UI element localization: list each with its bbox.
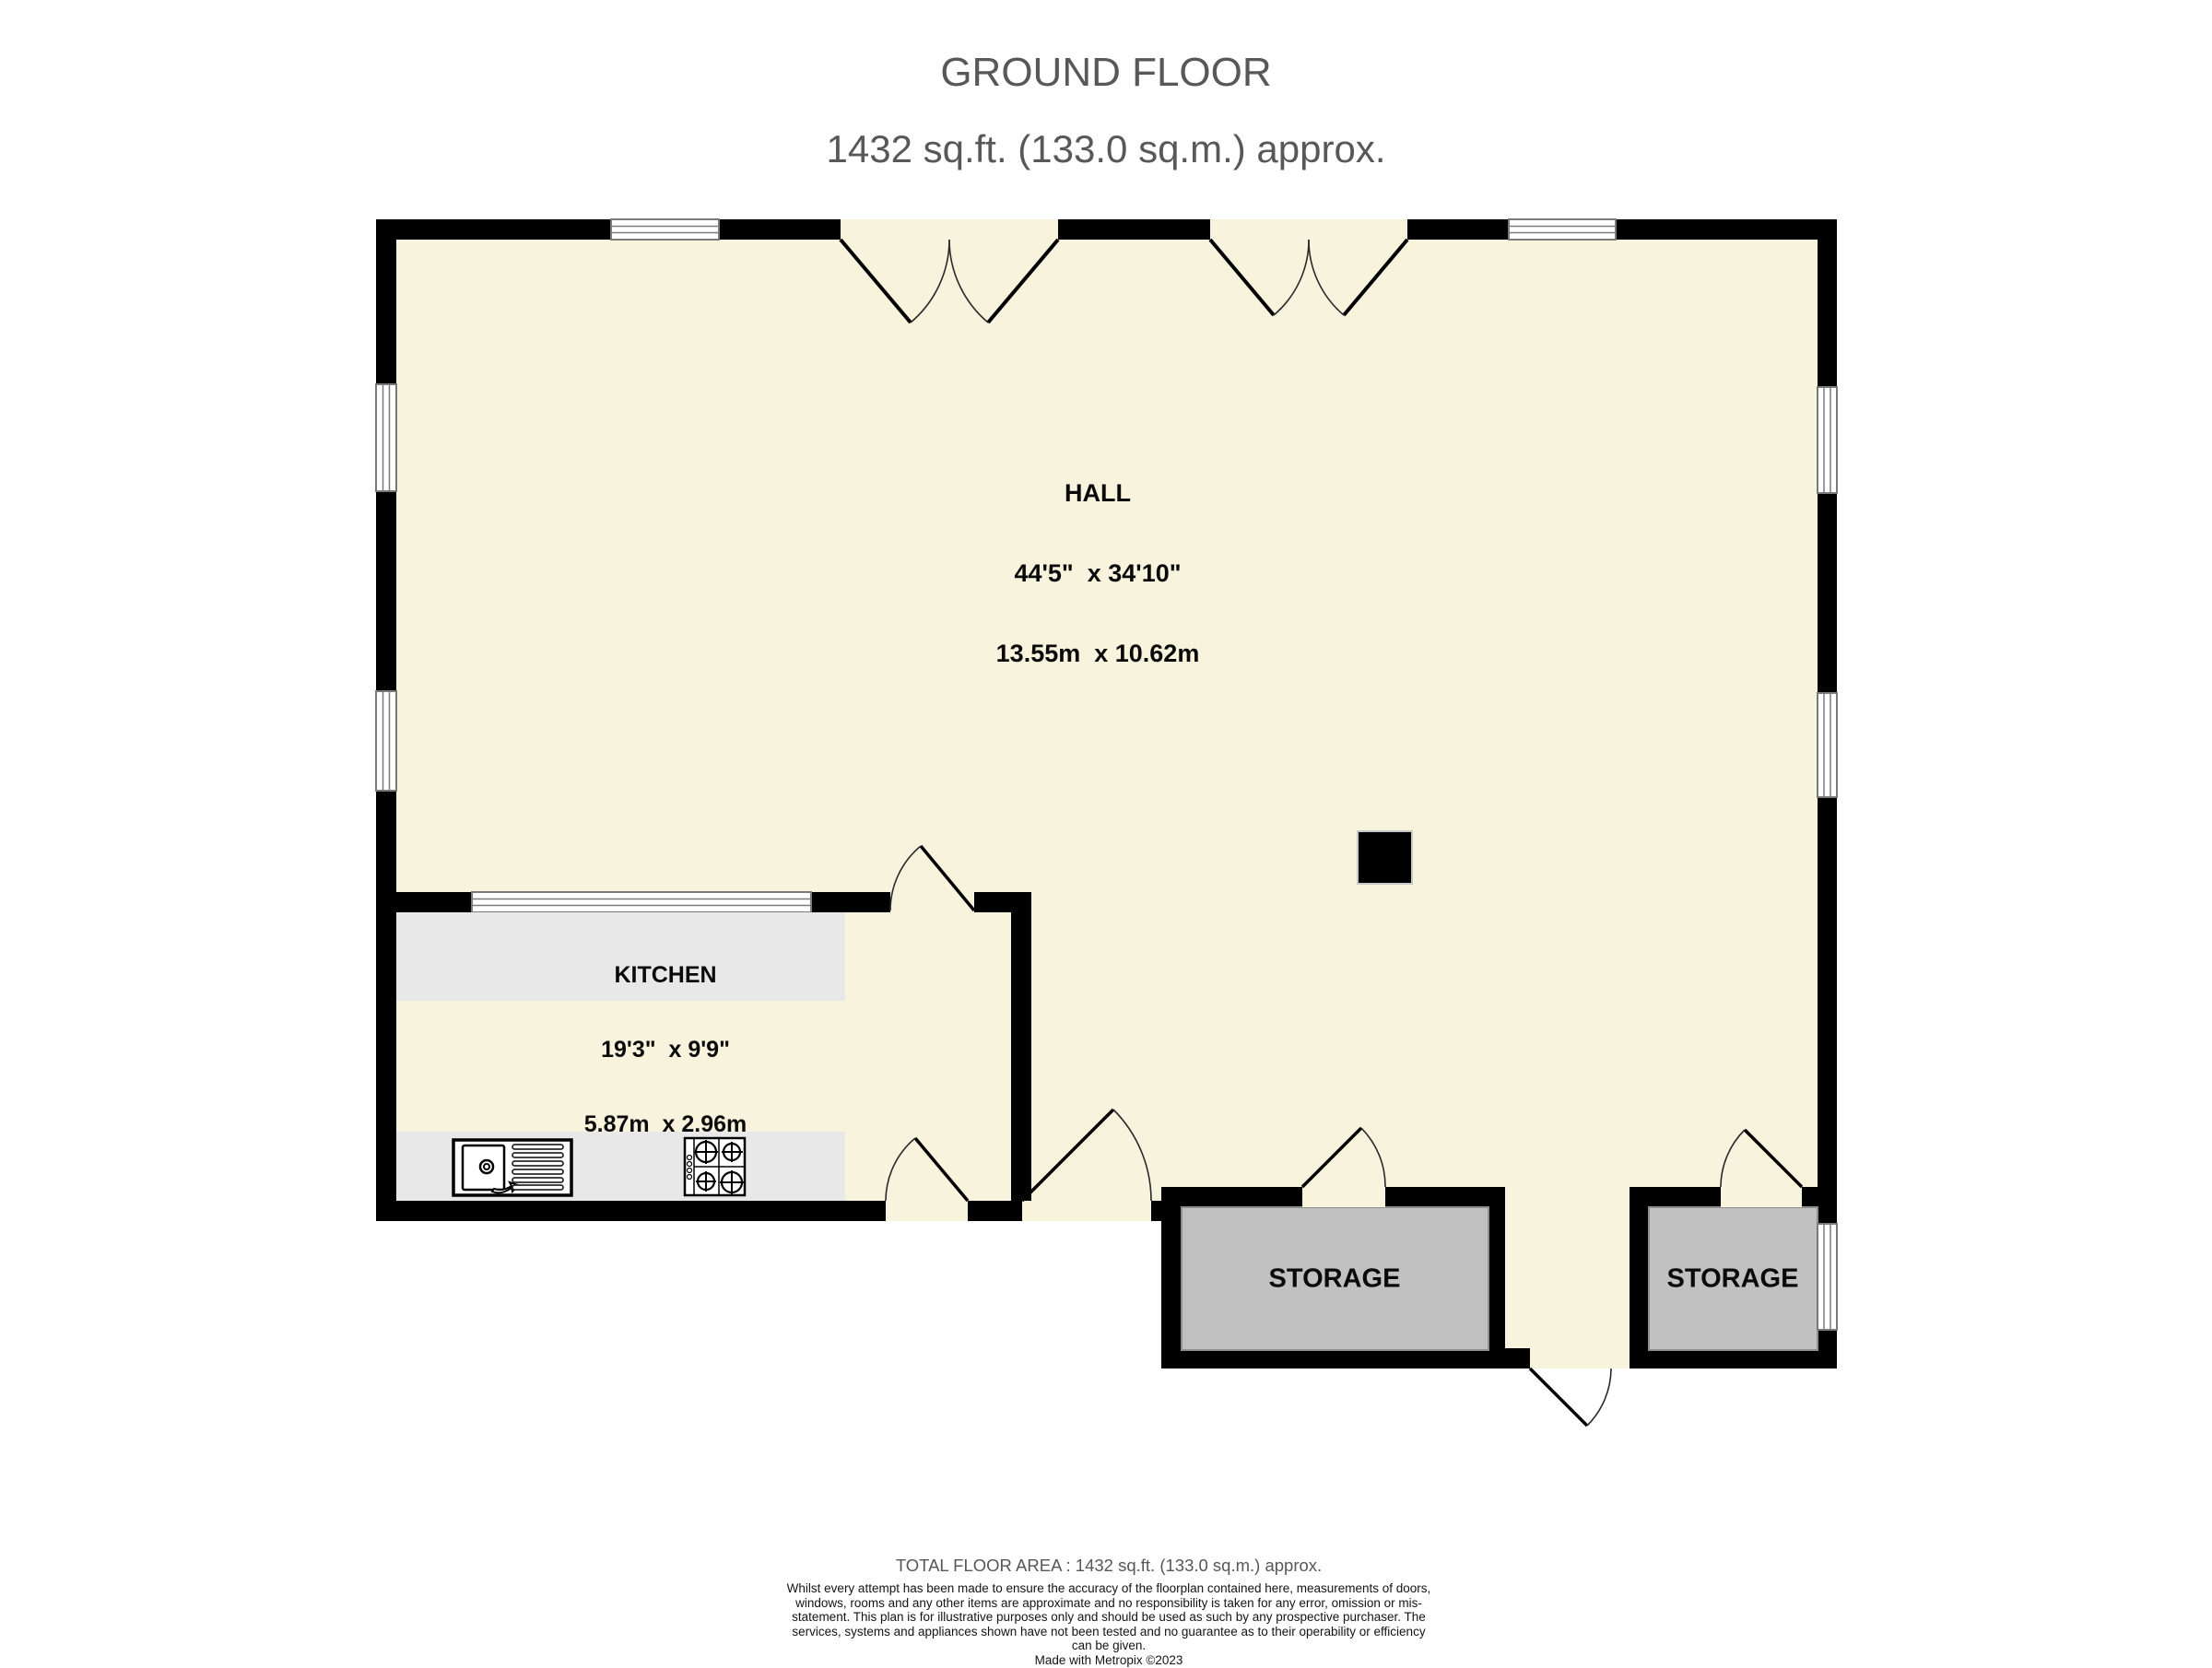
window-left-2 — [376, 691, 396, 791]
window-left-1 — [376, 384, 396, 491]
hall-name: HALL — [996, 480, 1200, 507]
hall-label: HALL 44'5" x 34'10" 13.55m x 10.62m — [996, 427, 1200, 694]
door-exterior — [1530, 1368, 1611, 1426]
floor-plan — [0, 0, 2212, 1659]
opening-storage2-door — [1721, 1187, 1802, 1207]
window-right-2 — [1818, 693, 1837, 797]
wall-top — [376, 219, 1837, 240]
kitchen-name: KITCHEN — [584, 963, 747, 988]
hall-dims-imperial: 44'5" x 34'10" — [996, 560, 1200, 587]
page-title: GROUND FLOOR — [827, 50, 1386, 96]
corridor-floor — [1505, 1180, 1630, 1368]
opening-hall-south-door — [1022, 1201, 1151, 1221]
opening-top-double-door-1 — [841, 219, 1058, 240]
opening-storage1-door — [1302, 1187, 1385, 1207]
window-top-2 — [1509, 219, 1616, 240]
plan-title: GROUND FLOOR 1432 sq.ft. (133.0 sq.m.) a… — [827, 17, 1386, 186]
footer: TOTAL FLOOR AREA : 1432 sq.ft. (133.0 sq… — [759, 1556, 1459, 1668]
opening-kitchen-rear-door — [886, 1201, 968, 1221]
metropix-credit: Made with Metropix ©2023 — [759, 1653, 1459, 1668]
window-storage2 — [1818, 1224, 1837, 1330]
window-right-1 — [1818, 387, 1837, 493]
window-kitchen — [472, 892, 811, 912]
pillar — [1358, 831, 1412, 884]
wall-kitchen-right — [1011, 892, 1031, 1221]
page-subtitle: 1432 sq.ft. (133.0 sq.m.) approx. — [827, 129, 1386, 170]
storage1-corner-block — [1505, 1348, 1530, 1368]
storage1-label: STORAGE — [1269, 1266, 1401, 1293]
total-floor-area: TOTAL FLOOR AREA : 1432 sq.ft. (133.0 sq… — [759, 1556, 1459, 1575]
window-top-1 — [611, 219, 719, 240]
opening-top-double-door-2 — [1210, 219, 1407, 240]
kitchen-label: KITCHEN 19'3" x 9'9" 5.87m x 2.96m — [584, 913, 747, 1162]
opening-exterior-door — [1530, 1348, 1611, 1368]
kitchen-dims-metric: 5.87m x 2.96m — [584, 1112, 747, 1137]
hall-dims-metric: 13.55m x 10.62m — [996, 640, 1200, 667]
sink-icon — [453, 1140, 571, 1195]
disclaimer-text: Whilst every attempt has been made to en… — [786, 1581, 1431, 1653]
storage2-label: STORAGE — [1667, 1266, 1799, 1293]
kitchen-dims-imperial: 19'3" x 9'9" — [584, 1038, 747, 1063]
